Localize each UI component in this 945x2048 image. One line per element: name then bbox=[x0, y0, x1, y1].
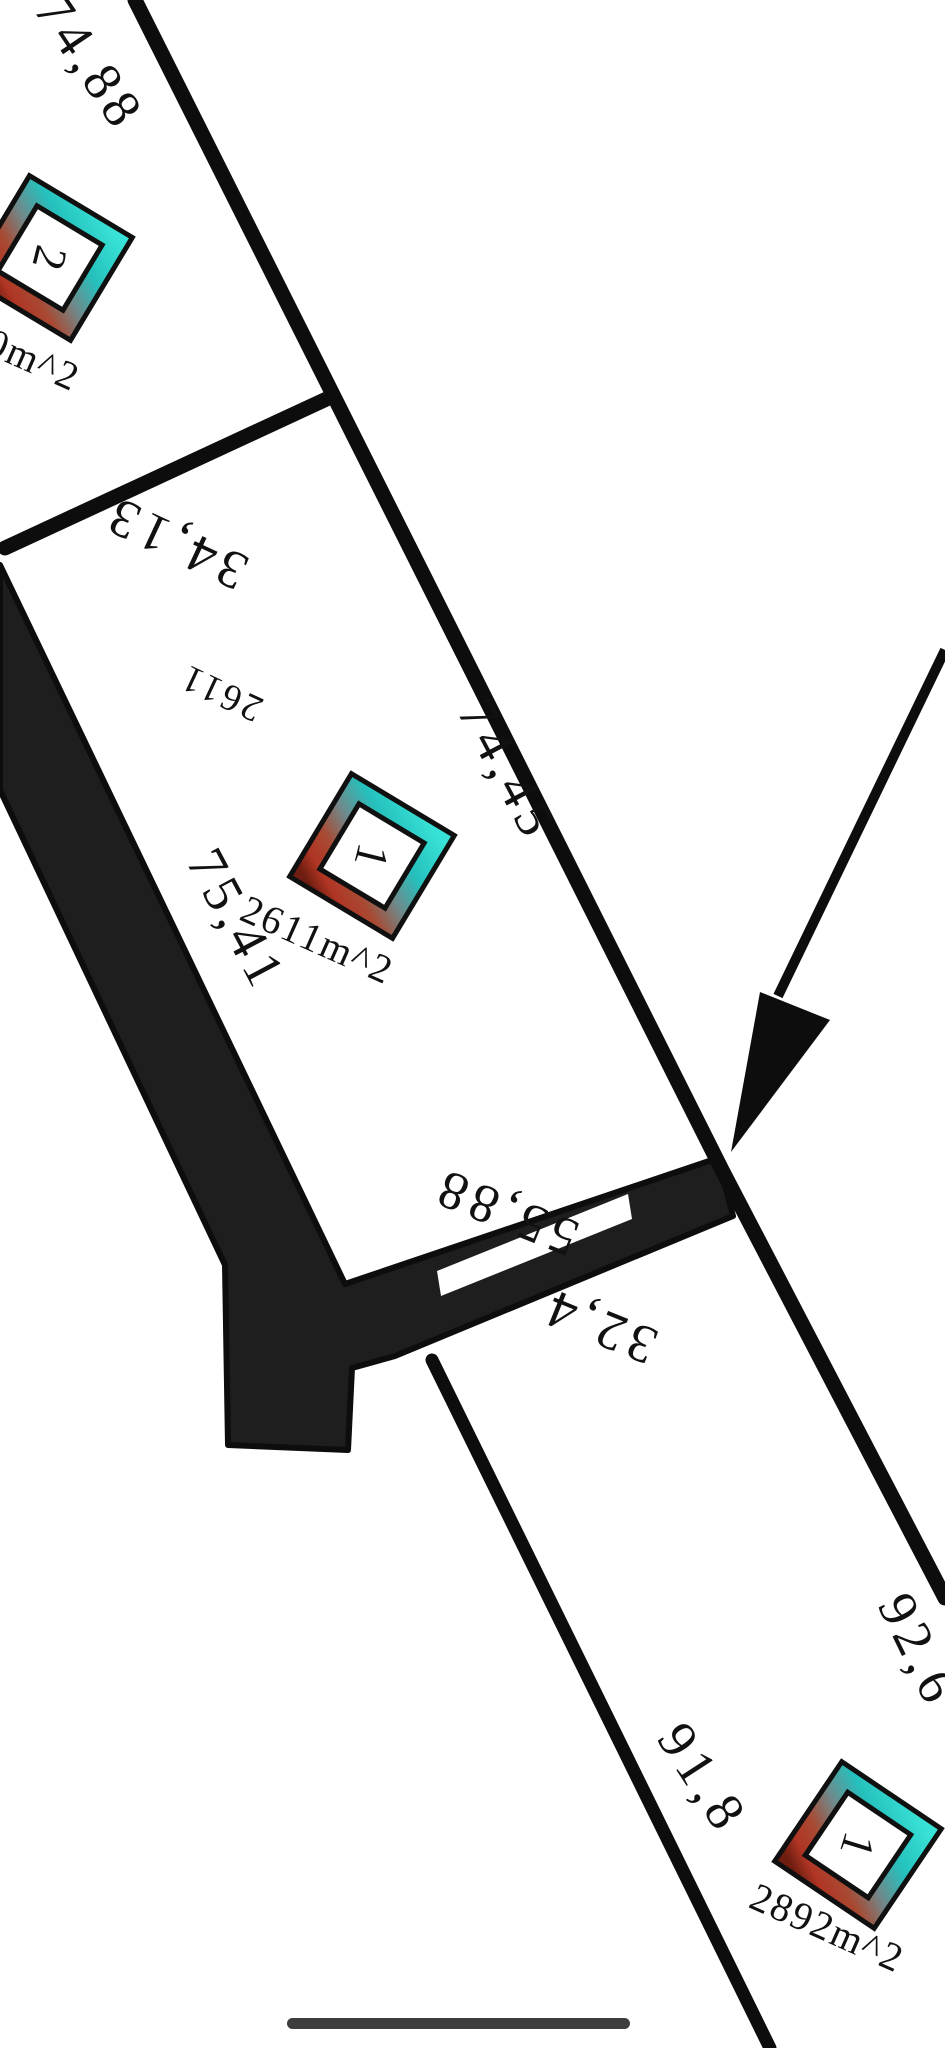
arrow-head-icon bbox=[731, 992, 830, 1152]
parcel-marker-2: 2 bbox=[0, 176, 132, 341]
parcel-inner-number: 2611 bbox=[173, 656, 269, 731]
measurement-north: 34,13 bbox=[94, 484, 257, 602]
boundary-line-bottom-left bbox=[432, 1360, 770, 2048]
measurement-east: 74,45 bbox=[446, 689, 570, 851]
measurement-road-branch: 32,4 bbox=[533, 1277, 665, 1377]
cadastral-map-screenshot: 74,88 34,13 74,45 75,41 55,88 32,4 91,8 … bbox=[0, 0, 945, 2048]
parcel-plan-canvas: 74,88 34,13 74,45 75,41 55,88 32,4 91,8 … bbox=[0, 0, 945, 2048]
measurement-top-left: 74,88 bbox=[23, 0, 157, 142]
home-indicator-bar[interactable] bbox=[287, 2018, 630, 2029]
arrow-shaft bbox=[778, 650, 945, 996]
measurement-bottom-right: 92,6 bbox=[866, 1584, 945, 1717]
